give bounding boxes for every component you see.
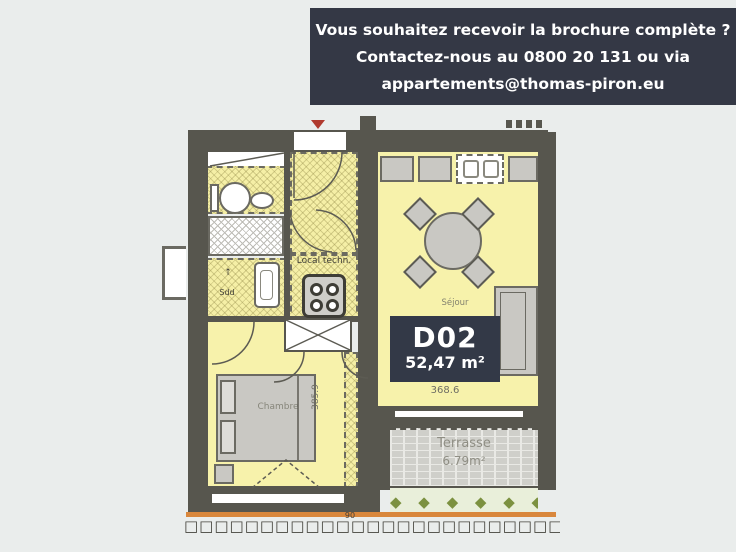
washer-knob <box>326 283 339 296</box>
shower <box>208 216 284 256</box>
unit-badge: D02 52,47 m² <box>390 316 500 382</box>
banner-email: appartements@thomas-piron.eu <box>310 71 736 98</box>
sofa-cushion <box>500 292 526 370</box>
basin-inner <box>260 270 273 300</box>
terrace-sliding-door <box>394 410 524 418</box>
wall-stub-top <box>360 116 376 130</box>
kitchen-unit <box>508 156 538 182</box>
crenellation-icon: □□□□□□□□□□□□□□□□□□□□□□□□□□□□ <box>184 517 560 535</box>
wardrobe <box>284 318 352 352</box>
entry-closet <box>206 152 286 167</box>
wall-bath-hall <box>284 152 290 322</box>
chambre-label: Chambre <box>238 402 318 412</box>
left-facade-fitting <box>162 246 186 300</box>
sejour-label: Séjour <box>420 298 490 308</box>
sofa <box>494 286 538 376</box>
washer-knob <box>310 299 323 312</box>
kitchen-unit <box>380 156 414 182</box>
terrasse-area-label: 6.79m² <box>400 454 528 468</box>
toilet-bowl <box>219 182 251 214</box>
plant-diamond-icon: ◆ ◆ ◆ ◆ ◆ ◆ <box>390 493 538 511</box>
nightstand <box>214 464 234 484</box>
wall-left <box>188 130 208 516</box>
sdd-arrow: ↑ <box>218 268 238 278</box>
terrasse-label: Terrasse <box>400 436 528 451</box>
toilet-tank <box>210 184 219 212</box>
wc-washbasin <box>250 192 274 209</box>
dim-chambre-height: 385.9 <box>311 369 321 425</box>
hall <box>290 152 358 254</box>
wall-right <box>538 132 556 490</box>
local-techn-label: Local techn. <box>290 256 358 266</box>
brochure-page: Vous souhaitez recevoir la brochure comp… <box>0 0 736 552</box>
washer-knob <box>310 283 323 296</box>
unit-code: D02 <box>390 324 500 352</box>
contact-banner: Vous souhaitez recevoir la brochure comp… <box>310 8 736 105</box>
washer-knob <box>326 299 339 312</box>
entrance-arrow-icon <box>311 120 325 129</box>
duct-strip <box>344 352 358 488</box>
washer <box>302 274 346 318</box>
kitchen-unit <box>418 156 452 182</box>
ground-squares: □□□□□□□□□□□□□□□□□□□□□□□□□□□□ <box>184 517 560 537</box>
wall-middle <box>358 130 378 426</box>
dim-ground: 90 <box>340 511 360 520</box>
entrance-door-gap <box>294 132 346 150</box>
unit-area: 52,47 m² <box>390 352 500 374</box>
banner-question: Vous souhaitez recevoir la brochure comp… <box>310 17 736 44</box>
sink-basin <box>463 160 479 178</box>
dim-sejour-width: 368.6 <box>400 385 490 396</box>
sdd-label: Sdd <box>212 288 242 297</box>
sdd-washbasin <box>254 262 280 308</box>
sink-basin <box>483 160 499 178</box>
neighbor-unit-dashes <box>506 120 546 128</box>
pillow <box>220 380 236 414</box>
bedroom-window <box>210 492 346 505</box>
kitchen-sink <box>456 154 504 184</box>
banner-phone: Contactez-nous au 0800 20 131 ou via <box>310 44 736 71</box>
pillow <box>220 420 236 454</box>
